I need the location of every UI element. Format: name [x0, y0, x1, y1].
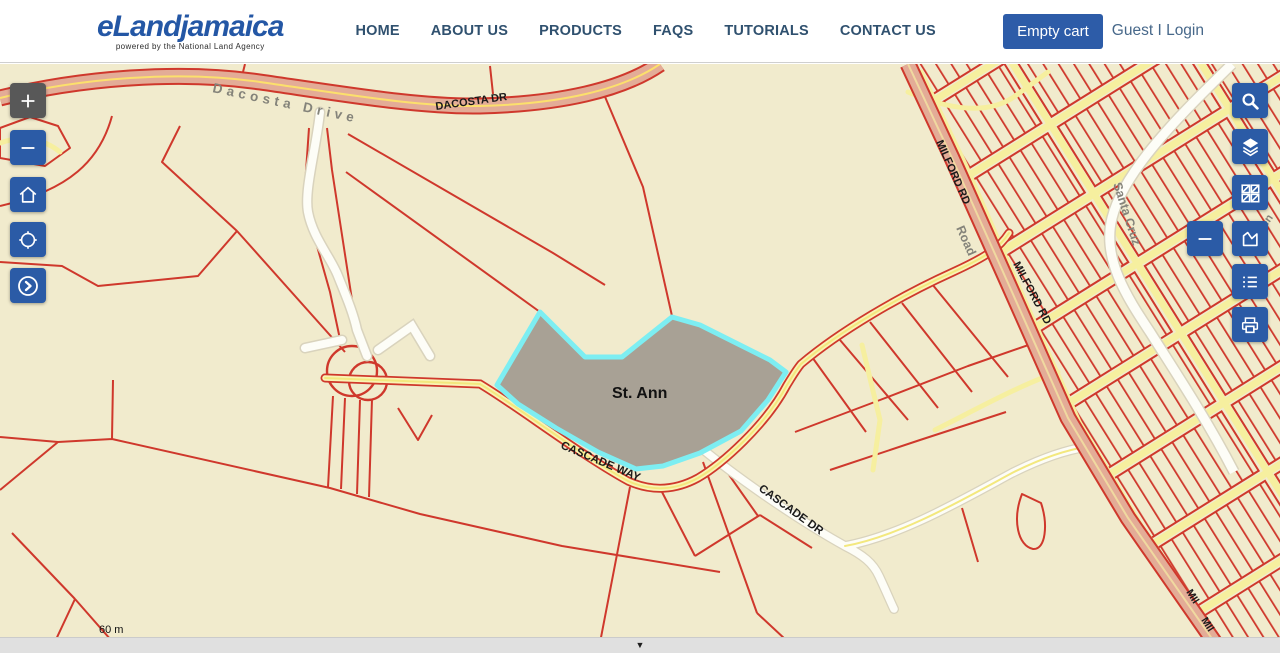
map-svg: Dacosta Drive DACOSTA DR MILFORD RD Road… [0, 64, 1280, 637]
print-button[interactable] [1232, 307, 1268, 342]
nav-tutorials[interactable]: TUTORIALS [724, 23, 809, 39]
collapse-arrow-icon[interactable]: ▼ [636, 641, 645, 650]
home-icon [17, 184, 39, 206]
main-nav: HOME ABOUT US PRODUCTS FAQS TUTORIALS CO… [355, 23, 935, 39]
search-icon [1239, 90, 1261, 112]
zoom-in-button[interactable] [10, 83, 46, 118]
nav-faqs[interactable]: FAQS [653, 23, 693, 39]
basemap-grid-icon [1239, 182, 1261, 204]
list-icon [1239, 271, 1261, 293]
locate-button[interactable] [10, 222, 46, 257]
nav-contact-us[interactable]: CONTACT US [840, 23, 936, 39]
logo[interactable]: eLandjamaica powered by the National Lan… [97, 12, 283, 51]
chevron-right-circle-icon [16, 274, 40, 298]
layers-button[interactable] [1232, 129, 1268, 164]
measure-button[interactable] [1232, 221, 1268, 256]
zoom-out-button[interactable] [10, 130, 46, 165]
measure-area-icon [1239, 228, 1261, 250]
locate-icon [17, 229, 39, 251]
logo-tagline: powered by the National Land Agency [97, 43, 283, 51]
plus-icon [17, 90, 39, 112]
basemap-gallery-button[interactable] [1232, 175, 1268, 210]
expand-panel-button[interactable] [10, 268, 46, 303]
print-icon [1239, 314, 1261, 336]
empty-cart-button[interactable]: Empty cart [1003, 14, 1103, 49]
nav-about-us[interactable]: ABOUT US [431, 23, 508, 39]
search-button[interactable] [1232, 83, 1268, 118]
logo-title: eLandjamaica [97, 12, 283, 42]
header: eLandjamaica powered by the National Lan… [0, 0, 1280, 63]
layers-icon [1239, 135, 1262, 158]
nav-home[interactable]: HOME [355, 23, 399, 39]
parcel-label-st-ann: St. Ann [612, 385, 667, 402]
map-canvas[interactable]: Dacosta Drive DACOSTA DR MILFORD RD Road… [0, 64, 1280, 637]
bottom-panel-collapse-bar[interactable]: ▼ [0, 637, 1280, 653]
legend-list-button[interactable] [1232, 264, 1268, 299]
minus-icon [1194, 228, 1216, 250]
home-extent-button[interactable] [10, 177, 46, 212]
page: eLandjamaica powered by the National Lan… [0, 0, 1280, 653]
minus-icon [17, 137, 39, 159]
nav-products[interactable]: PRODUCTS [539, 23, 622, 39]
scale-bar-label: 60 m [99, 624, 123, 636]
guest-login-link[interactable]: Guest I Login [1112, 22, 1204, 40]
collapse-measure-button[interactable] [1187, 221, 1223, 256]
